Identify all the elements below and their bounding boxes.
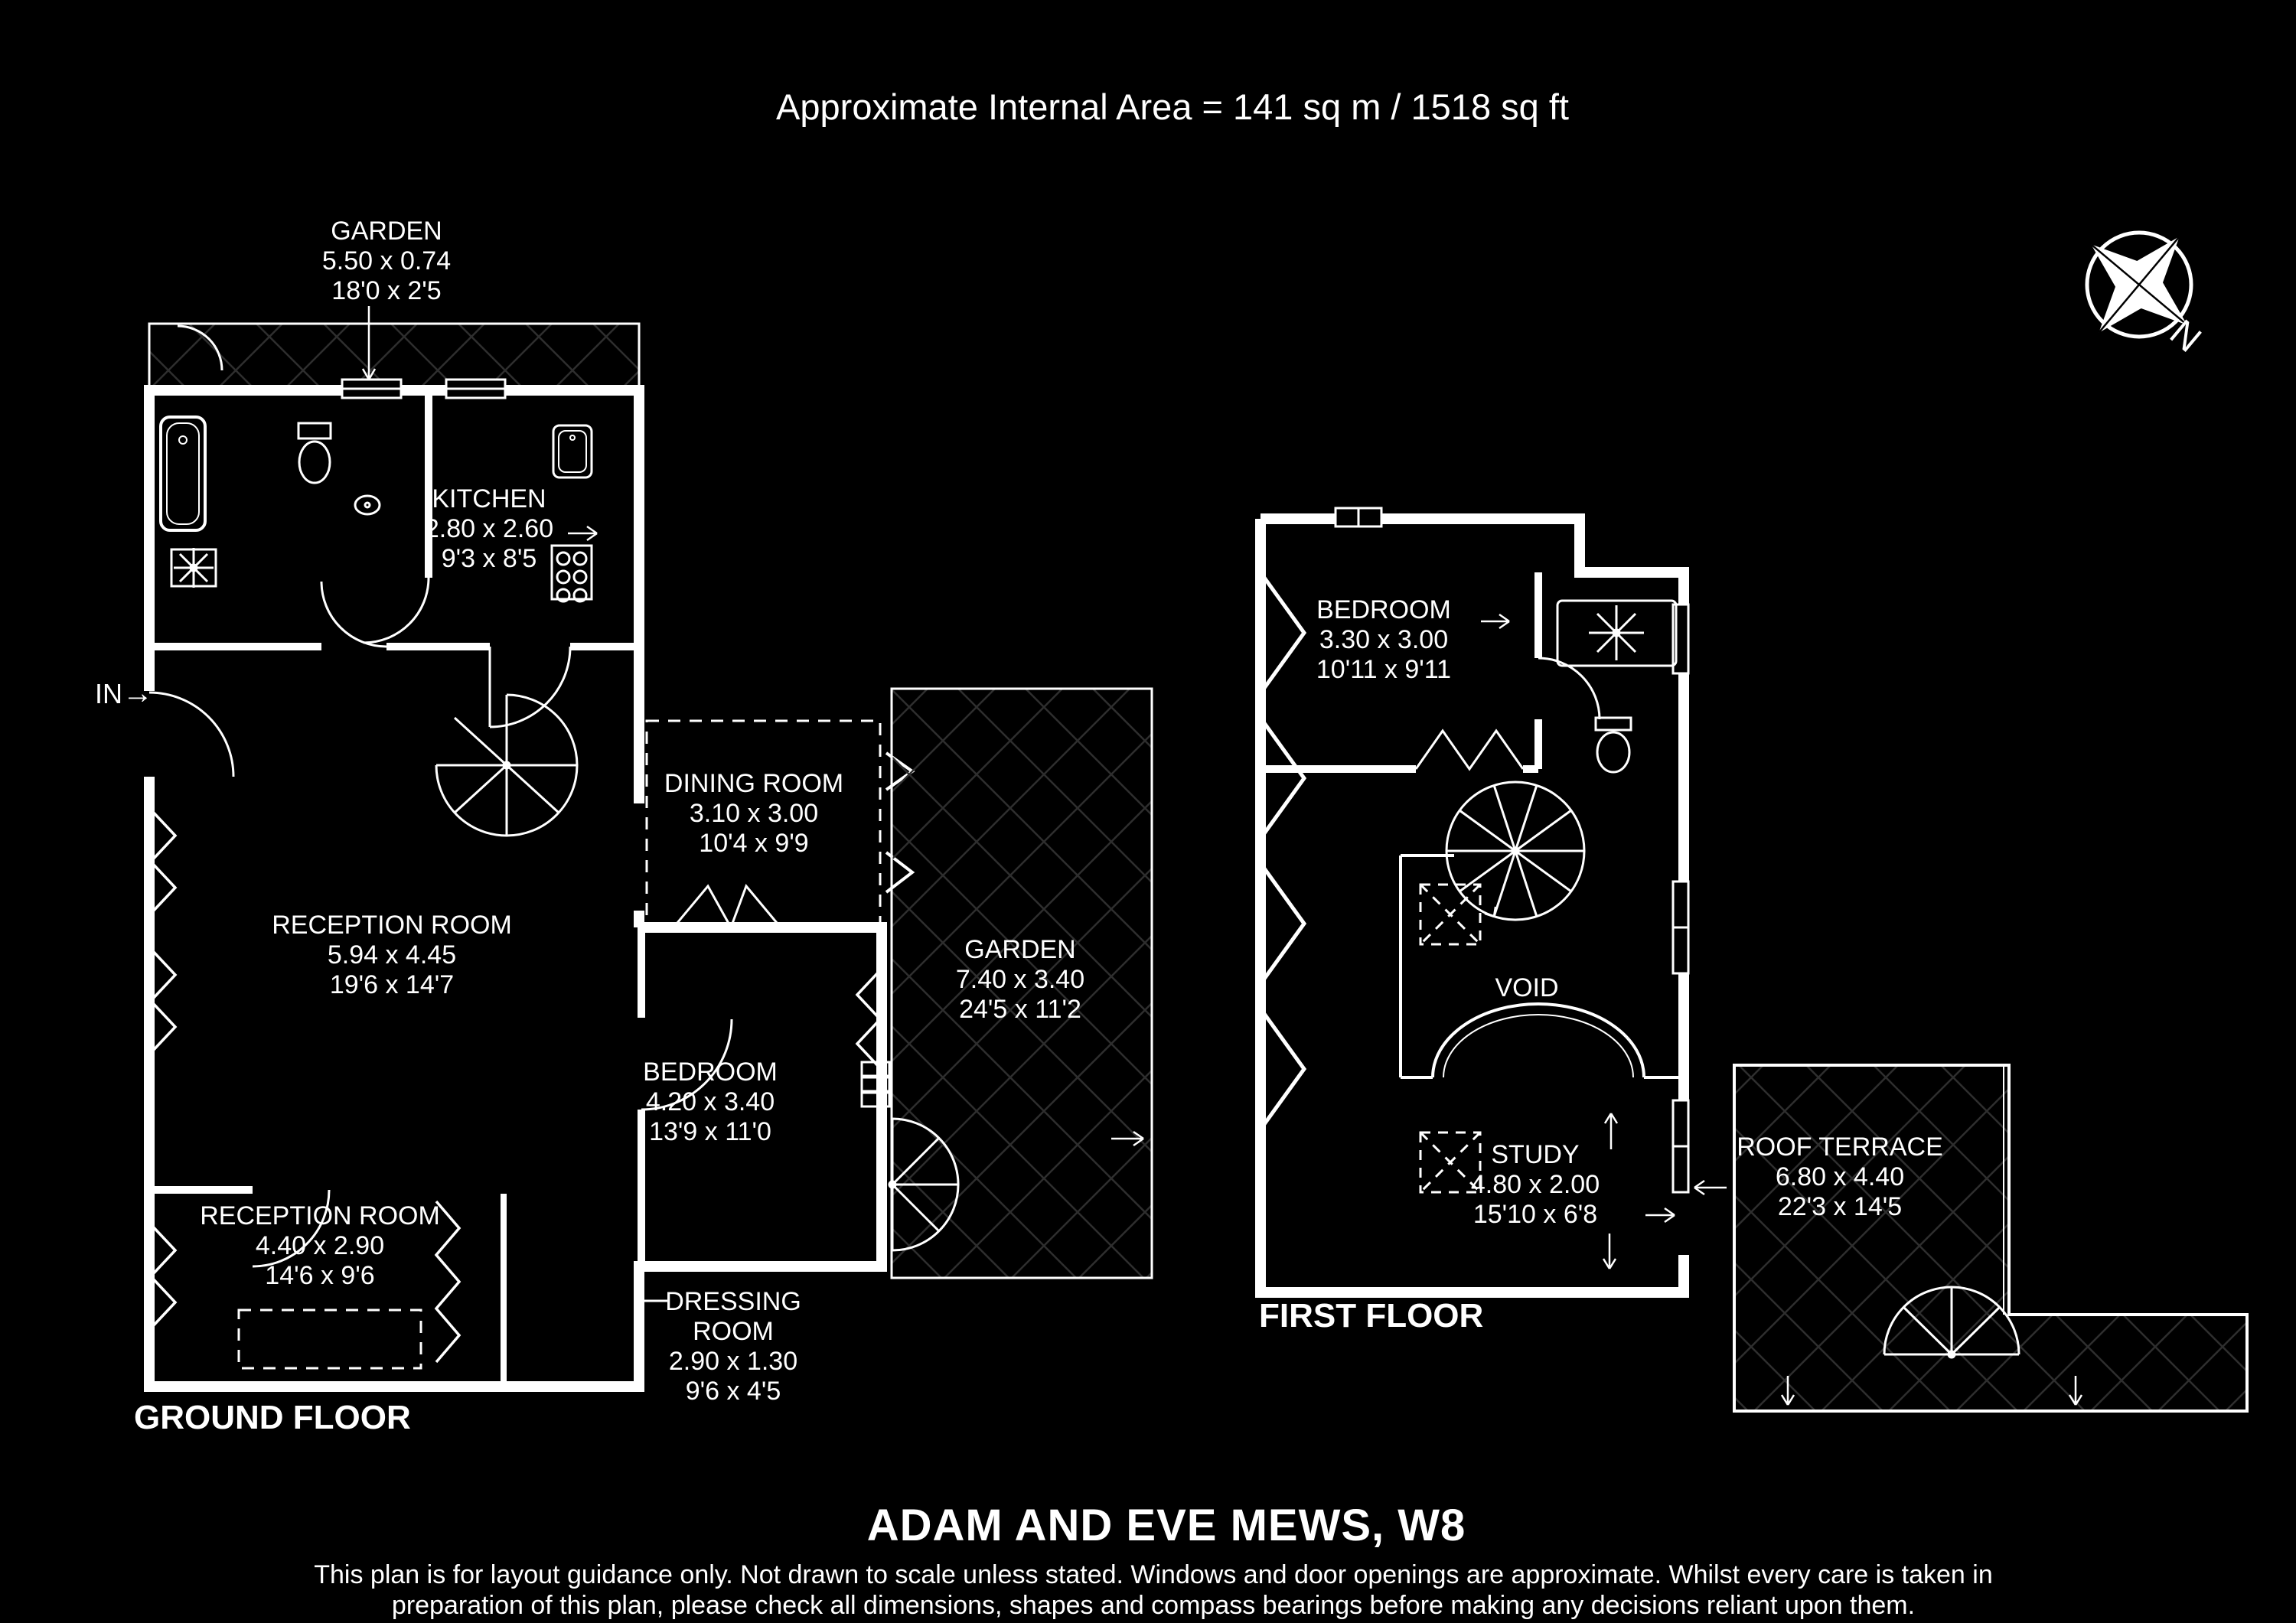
- bifold-door-icon: [1416, 731, 1523, 769]
- room-name: ROOF TERRACE: [1737, 1133, 1943, 1162]
- spiral-staircase-icon: [436, 695, 577, 836]
- entry-door: [149, 693, 233, 777]
- property-address: ADAM AND EVE MEWS, W8: [631, 1500, 1702, 1551]
- toilet-icon: [298, 423, 331, 483]
- disclaimer-line-2: preparation of this plan, please check a…: [230, 1590, 2077, 1621]
- room-label-roof-terrace: ROOF TERRACE 6.80 x 4.40 22'3 x 14'5: [1737, 1133, 1943, 1222]
- void-walls: [1401, 855, 1684, 1077]
- page-title: Approximate Internal Area = 141 sq m / 1…: [637, 86, 1708, 128]
- room-dim-imperial: 9'6 x 4'5: [638, 1377, 829, 1406]
- room-name: BEDROOM: [643, 1058, 778, 1087]
- room-name: VOID: [1495, 973, 1558, 1003]
- dimension-arrow: [568, 526, 597, 540]
- room-dim-metric: 4.20 x 3.40: [643, 1087, 778, 1117]
- entry-in-label: IN→: [31, 676, 153, 711]
- room-dim-imperial: 9'3 x 8'5: [425, 544, 553, 574]
- room-label-bedroom-ground: BEDROOM 4.20 x 3.40 13'9 x 11'0: [643, 1058, 778, 1147]
- garden-strip: [149, 306, 639, 386]
- disclaimer-text: This plan is for layout guidance only. N…: [230, 1559, 2077, 1621]
- dashed-feature-outline: [239, 1310, 421, 1368]
- ground-floor-label: GROUND FLOOR: [134, 1399, 411, 1437]
- kitchen-sink-icon: [553, 425, 592, 477]
- toilet-icon: [1596, 718, 1631, 772]
- room-dim-imperial: 10'11 x 9'11: [1316, 655, 1451, 685]
- bay-window-zigzag: [673, 886, 781, 927]
- room-dim-imperial: 13'9 x 11'0: [643, 1117, 778, 1147]
- room-label-garden-top: GARDEN 5.50 x 0.74 18'0 x 2'5: [322, 217, 451, 306]
- room-dim-metric: 3.30 x 3.00: [1316, 625, 1451, 655]
- room-label-reception-room-2: RECEPTION ROOM 4.40 x 2.90 14'6 x 9'6: [200, 1201, 440, 1291]
- room-dim-imperial: 24'5 x 11'2: [956, 995, 1084, 1025]
- room-dim-metric: 2.90 x 1.30: [638, 1347, 829, 1377]
- room-dim-imperial: 15'10 x 6'8: [1471, 1200, 1600, 1230]
- room-label-garden: GARDEN 7.40 x 3.40 24'5 x 11'2: [956, 935, 1084, 1025]
- room-dim-metric: 5.94 x 4.45: [272, 940, 512, 970]
- room-label-kitchen: KITCHEN 2.80 x 2.60 9'3 x 8'5: [425, 484, 553, 574]
- room-dim-metric: 2.80 x 2.60: [425, 514, 553, 544]
- disclaimer-line-1: This plan is for layout guidance only. N…: [230, 1559, 2077, 1590]
- room-name: RECEPTION ROOM: [200, 1201, 440, 1231]
- room-name: DRESSING ROOM: [638, 1287, 829, 1347]
- room-name: BEDROOM: [1316, 595, 1451, 625]
- room-label-study: STUDY 4.80 x 2.00 15'10 x 6'8: [1471, 1140, 1600, 1230]
- room-label-bedroom-first: BEDROOM 3.30 x 3.00 10'11 x 9'11: [1316, 595, 1451, 685]
- door-arc: [149, 693, 233, 777]
- room-dim-imperial: 10'4 x 9'9: [664, 829, 843, 859]
- room-label-dressing-room: DRESSING ROOM 2.90 x 1.30 9'6 x 4'5: [638, 1287, 829, 1406]
- room-name: DINING ROOM: [664, 769, 843, 799]
- room-name: GARDEN: [956, 935, 1084, 965]
- room-dim-imperial: 14'6 x 9'6: [200, 1261, 440, 1291]
- bathtub-icon: [161, 417, 205, 530]
- door-arc: [1538, 658, 1600, 719]
- room-dim-metric: 3.10 x 3.00: [664, 799, 843, 829]
- room-label-dining-room: DINING ROOM 3.10 x 3.00 10'4 x 9'9: [664, 769, 843, 859]
- room-dim-metric: 7.40 x 3.40: [956, 965, 1084, 995]
- room-label-reception-room: RECEPTION ROOM 5.94 x 4.45 19'6 x 14'7: [272, 911, 512, 1000]
- sloped-window-zigzag: [1264, 578, 1304, 1124]
- room-name: RECEPTION ROOM: [272, 911, 512, 940]
- shower-icon: [1557, 601, 1676, 666]
- floorplan-page: Approximate Internal Area = 141 sq m / 1…: [0, 0, 2296, 1623]
- hob-icon: [552, 546, 592, 601]
- compass-icon: [2050, 196, 2227, 373]
- room-dim-imperial: 19'6 x 14'7: [272, 970, 512, 1000]
- shower-icon: [171, 548, 216, 588]
- basin-icon: [355, 496, 380, 514]
- room-dim-metric: 4.40 x 2.90: [200, 1231, 440, 1261]
- room-dim-metric: 6.80 x 4.40: [1737, 1162, 1943, 1192]
- room-label-void: VOID: [1495, 973, 1558, 1003]
- room-name: KITCHEN: [425, 484, 553, 514]
- room-name: STUDY: [1471, 1140, 1600, 1170]
- first-floor-label: FIRST FLOOR: [1259, 1297, 1483, 1335]
- room-dim-imperial: 22'3 x 14'5: [1737, 1192, 1943, 1222]
- room-dim-metric: 5.50 x 0.74: [322, 246, 451, 276]
- roof-terrace-area: [1694, 1065, 2247, 1411]
- room-dim-imperial: 18'0 x 2'5: [322, 276, 451, 306]
- entry-in-text: IN: [95, 678, 122, 709]
- room-name: GARDEN: [322, 217, 451, 246]
- room-dim-metric: 4.80 x 2.00: [1471, 1170, 1600, 1200]
- entry-arrow-icon: →: [122, 676, 153, 710]
